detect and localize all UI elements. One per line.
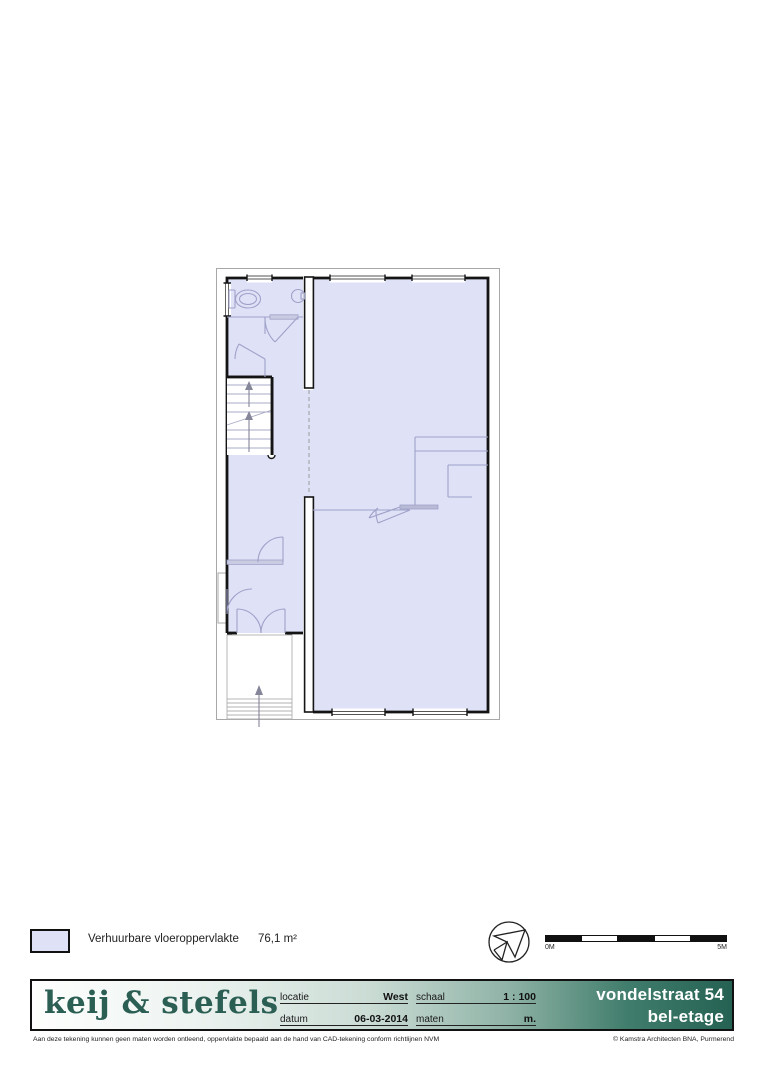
field-label: datum [280,1014,308,1025]
drawing-sheet: Verhuurbare vloeroppervlakte 76,1 m² 0M … [0,0,764,1080]
scale-bar-segments [545,935,727,942]
field-row-schaal: schaal 1 : 100 [416,986,536,1004]
address-floor: bel-etage [596,1006,724,1028]
north-arrow-icon [486,919,532,965]
scale-start-label: 0M [545,944,555,951]
field-row-locatie: locatie West [280,986,408,1004]
field-row-datum: datum 06-03-2014 [280,1008,408,1026]
copyright-text: © Kamstra Architecten BNA, Purmerend [613,1036,734,1043]
company-logo: keij & stefels [44,985,279,1022]
scale-end-label: 5M [717,944,727,951]
field-label: locatie [280,992,309,1003]
entrance-stairs [227,635,292,727]
field-label: schaal [416,992,445,1003]
title-fields-left: locatie West datum 06-03-2014 [280,986,408,1026]
scale-bar: 0M 5M [545,935,727,951]
title-fields-right: schaal 1 : 100 maten m. [416,986,536,1026]
address-street: vondelstraat 54 [596,984,724,1006]
field-value: West [383,991,408,1003]
project-address: vondelstraat 54 bel-etage [596,984,724,1028]
field-value: m. [524,1013,536,1025]
legend-label: Verhuurbare vloeroppervlakte [88,933,239,945]
field-value: 1 : 100 [503,991,536,1003]
field-row-maten: maten m. [416,1008,536,1026]
field-value: 06-03-2014 [354,1013,408,1025]
field-label: maten [416,1014,444,1025]
title-block: keij & stefels locatie West datum 06-03-… [30,979,734,1031]
disclaimer-text: Aan deze tekening kunnen geen maten word… [33,1036,439,1043]
interior-stairs [227,377,275,459]
legend-area-value: 76,1 m² [258,933,297,945]
legend-swatch [30,929,70,953]
floor-plan [214,264,504,730]
